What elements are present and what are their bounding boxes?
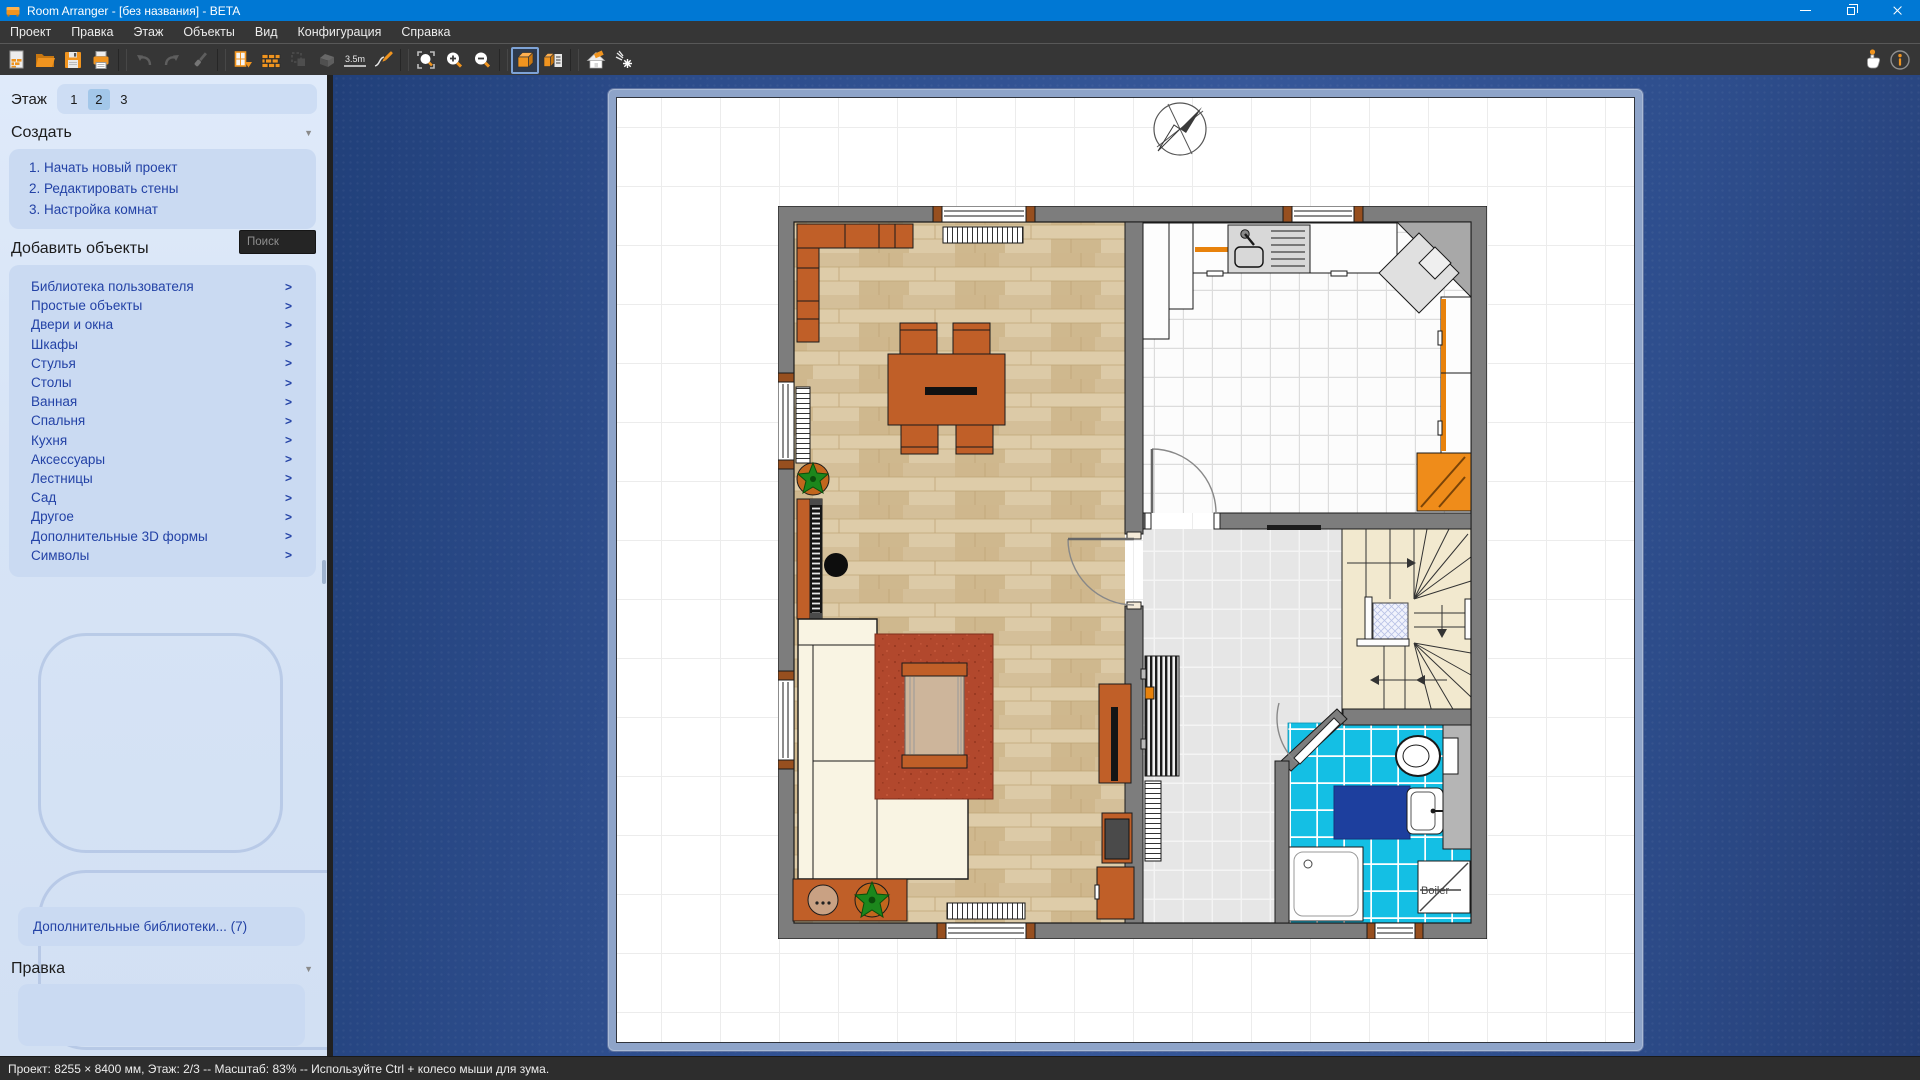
- page-frame: Boiler: [607, 88, 1644, 1052]
- measure-label: 3.5m: [344, 54, 366, 67]
- floor-plan[interactable]: Boiler: [778, 206, 1487, 939]
- app-sofa-icon: [6, 5, 20, 17]
- floor-selector: 1 2 3: [57, 84, 317, 114]
- undo-arrow-icon: [133, 49, 155, 71]
- pan-hand-button[interactable]: [1858, 47, 1886, 74]
- chevron-right-icon: >: [285, 452, 292, 466]
- floor-button-3[interactable]: 3: [113, 89, 135, 110]
- printer-icon: [90, 49, 112, 71]
- potted-plant[interactable]: [797, 463, 829, 495]
- edit-section-header[interactable]: Правка ▼: [0, 951, 327, 981]
- more-libraries-card: Дополнительные библиотеки... (7): [18, 907, 305, 946]
- open-folder-icon: [34, 49, 56, 71]
- library-item-bathroom[interactable]: Ванная>: [9, 392, 316, 411]
- library-item-stairs[interactable]: Лестницы>: [9, 469, 316, 488]
- format-brush-button[interactable]: [186, 47, 214, 74]
- menu-floor[interactable]: Этаж: [123, 21, 173, 44]
- close-icon: [1892, 5, 1903, 16]
- toolbar: 3.5m: [0, 45, 1920, 75]
- staircase[interactable]: [1342, 529, 1471, 716]
- menu-view[interactable]: Вид: [245, 21, 288, 44]
- new-project-button[interactable]: [3, 47, 31, 74]
- zoom-in-button[interactable]: [440, 47, 468, 74]
- create-link-edit-walls[interactable]: 2. Редактировать стены: [9, 178, 316, 199]
- menu-project[interactable]: Проект: [0, 21, 61, 44]
- walkthrough-3d-button[interactable]: [582, 47, 610, 74]
- library-item-user-library[interactable]: Библиотека пользователя>: [9, 277, 316, 296]
- minimize-button[interactable]: [1782, 0, 1828, 21]
- menu-objects[interactable]: Объекты: [173, 21, 245, 44]
- toolbar-separator: [400, 49, 409, 71]
- selection-icon: [288, 49, 310, 71]
- chevron-right-icon: >: [285, 356, 292, 370]
- restore-button[interactable]: [1828, 0, 1874, 21]
- library-item-tables[interactable]: Столы>: [9, 373, 316, 392]
- redo-button[interactable]: [158, 47, 186, 74]
- chevron-right-icon: >: [285, 376, 292, 390]
- chevron-right-icon: >: [285, 280, 292, 294]
- save-floppy-icon: [62, 49, 84, 71]
- window-title: Room Arranger - [без названия] - BETA: [27, 4, 240, 18]
- toolbar-separator: [217, 49, 226, 71]
- save-button[interactable]: [59, 47, 87, 74]
- info-icon: [1888, 48, 1912, 72]
- cube-list-icon: [542, 49, 564, 71]
- redo-arrow-icon: [161, 49, 183, 71]
- library-item-garden[interactable]: Сад>: [9, 488, 316, 507]
- sidebar: Этаж 1 2 3 Создать ▼ 1. Начать новый про…: [0, 75, 333, 1056]
- zoom-in-icon: [443, 49, 465, 71]
- info-button[interactable]: [1886, 47, 1914, 74]
- spline-pen-icon: [372, 49, 394, 71]
- chevron-right-icon: >: [285, 491, 292, 505]
- zoom-region-icon: [415, 49, 437, 71]
- menu-bar: Проект Правка Этаж Объекты Вид Конфигура…: [0, 21, 1920, 44]
- library-item-kitchen[interactable]: Кухня>: [9, 431, 316, 450]
- object-library-card: Библиотека пользователя> Простые объекты…: [9, 265, 316, 577]
- shower-tray[interactable]: [1289, 847, 1363, 921]
- status-text: Проект: 8255 × 8400 мм, Этаж: 2/3 -- Мас…: [0, 1062, 549, 1076]
- chevron-right-icon: >: [285, 337, 292, 351]
- library-item-accessories[interactable]: Аксессуары>: [9, 450, 316, 469]
- chevron-right-icon: >: [285, 433, 292, 447]
- edit-card: [18, 984, 305, 1046]
- toolbar-separator: [118, 49, 127, 71]
- kitchen-orange-cabinet: [1417, 453, 1471, 511]
- stool[interactable]: [824, 553, 848, 577]
- floor-button-2[interactable]: 2: [88, 89, 110, 110]
- collapse-icon[interactable]: ▼: [304, 964, 313, 974]
- edit-title: Правка: [11, 960, 65, 978]
- new-document-icon: [6, 49, 28, 71]
- open-project-button[interactable]: [31, 47, 59, 74]
- svg-text:Boiler: Boiler: [1421, 885, 1449, 897]
- bath-mat[interactable]: [1334, 786, 1410, 839]
- drawing-canvas[interactable]: Boiler: [333, 75, 1920, 1056]
- threshold-mark: [1267, 525, 1321, 530]
- chevron-right-icon: >: [285, 414, 292, 428]
- window-top-living: [933, 206, 1035, 222]
- pouf: [808, 885, 838, 915]
- create-link-room-settings[interactable]: 3. Настройка комнат: [9, 199, 316, 220]
- search-input[interactable]: [239, 230, 316, 254]
- library-item-cabinets[interactable]: Шкафы>: [9, 335, 316, 354]
- window-top-kitchen: [1283, 206, 1363, 222]
- sideboard[interactable]: [793, 879, 907, 921]
- effects-button[interactable]: [610, 47, 638, 74]
- draw-walls-button[interactable]: [257, 47, 285, 74]
- drawing-page[interactable]: Boiler: [616, 97, 1635, 1043]
- chevron-right-icon: >: [285, 299, 292, 313]
- status-bar: Проект: 8255 × 8400 мм, Этаж: 2/3 -- Мас…: [0, 1056, 1920, 1080]
- collapse-icon[interactable]: ▼: [304, 128, 313, 138]
- restore-icon: [1847, 7, 1855, 15]
- toolbar-right-group: [1858, 45, 1914, 75]
- print-button[interactable]: [87, 47, 115, 74]
- potted-plant-2: [855, 882, 889, 917]
- hall-shelf[interactable]: [1141, 656, 1179, 776]
- insert-opening-button[interactable]: [229, 47, 257, 74]
- kitchen-sink: [1228, 225, 1310, 273]
- chevron-right-icon: >: [285, 318, 292, 332]
- boiler[interactable]: Boiler: [1418, 861, 1470, 913]
- view-3d-list-button[interactable]: [539, 47, 567, 74]
- floor-button-1[interactable]: 1: [63, 89, 85, 110]
- brick-wall-icon: [260, 49, 282, 71]
- menu-help[interactable]: Справка: [391, 21, 460, 44]
- menu-edit[interactable]: Правка: [61, 21, 123, 44]
- coffee-table[interactable]: [902, 663, 967, 768]
- chevron-right-icon: >: [285, 471, 292, 485]
- select-objects-button[interactable]: [285, 47, 313, 74]
- wall-block-icon: [316, 49, 338, 71]
- window-bottom-living: [937, 923, 1035, 939]
- paint-brush-icon: [189, 49, 211, 71]
- chevron-right-icon: >: [285, 510, 292, 524]
- title-bar: Room Arranger - [без названия] - BETA: [0, 0, 1920, 21]
- house-3d-icon: [585, 49, 607, 71]
- view-3d-button[interactable]: [511, 47, 539, 74]
- undo-button[interactable]: [130, 47, 158, 74]
- close-button[interactable]: [1874, 0, 1920, 21]
- cube-3d-icon: [514, 49, 536, 71]
- zoom-region-button[interactable]: [412, 47, 440, 74]
- window-left-2: [778, 671, 794, 769]
- piano[interactable]: [797, 499, 822, 619]
- measure-button[interactable]: 3.5m: [341, 47, 369, 74]
- library-item-chairs[interactable]: Стулья>: [9, 354, 316, 373]
- create-title: Создать: [11, 124, 72, 142]
- chevron-right-icon: >: [285, 548, 292, 562]
- add-objects-section-header: Добавить объекты: [0, 231, 327, 261]
- library-item-other[interactable]: Другое>: [9, 507, 316, 526]
- compass-rose[interactable]: [1150, 99, 1210, 159]
- create-link-new-project[interactable]: 1. Начать новый проект: [9, 157, 316, 178]
- window-insert-icon: [232, 49, 254, 71]
- library-item-symbols[interactable]: Символы>: [9, 546, 316, 565]
- zoom-out-icon: [471, 49, 493, 71]
- washbasin[interactable]: [1407, 788, 1443, 834]
- chevron-right-icon: >: [285, 395, 292, 409]
- toolbar-separator: [499, 49, 508, 71]
- window-left-1: [778, 373, 794, 469]
- sofa-watermark: [38, 633, 283, 853]
- toilet[interactable]: [1396, 736, 1458, 776]
- library-item-bedroom[interactable]: Спальня>: [9, 411, 316, 430]
- sidebar-scrollbar[interactable]: [322, 560, 326, 584]
- draw-spline-button[interactable]: [369, 47, 397, 74]
- menu-configuration[interactable]: Конфигурация: [288, 21, 392, 44]
- create-card: 1. Начать новый проект 2. Редактировать …: [9, 149, 316, 229]
- toolbar-separator: [570, 49, 579, 71]
- window-bottom-bathroom: [1367, 923, 1423, 939]
- chevron-right-icon: >: [285, 529, 292, 543]
- create-section-header[interactable]: Создать ▼: [0, 115, 327, 145]
- room-arranger-window: Room Arranger - [без названия] - BETA Пр…: [0, 0, 1920, 1080]
- edit-walls-button[interactable]: [313, 47, 341, 74]
- add-objects-title: Добавить объекты: [11, 240, 149, 258]
- spray-effects-icon: [613, 49, 635, 71]
- hand-pointer-icon: [1860, 48, 1884, 72]
- floor-label: Этаж: [11, 91, 47, 108]
- library-item-simple-objects[interactable]: Простые объекты>: [9, 296, 316, 315]
- minimize-icon: [1800, 10, 1811, 11]
- library-item-doors-windows[interactable]: Двери и окна>: [9, 315, 316, 334]
- more-libraries-link[interactable]: Дополнительные библиотеки... (7): [18, 917, 305, 936]
- zoom-out-button[interactable]: [468, 47, 496, 74]
- library-item-3d-shapes[interactable]: Дополнительные 3D формы>: [9, 526, 316, 545]
